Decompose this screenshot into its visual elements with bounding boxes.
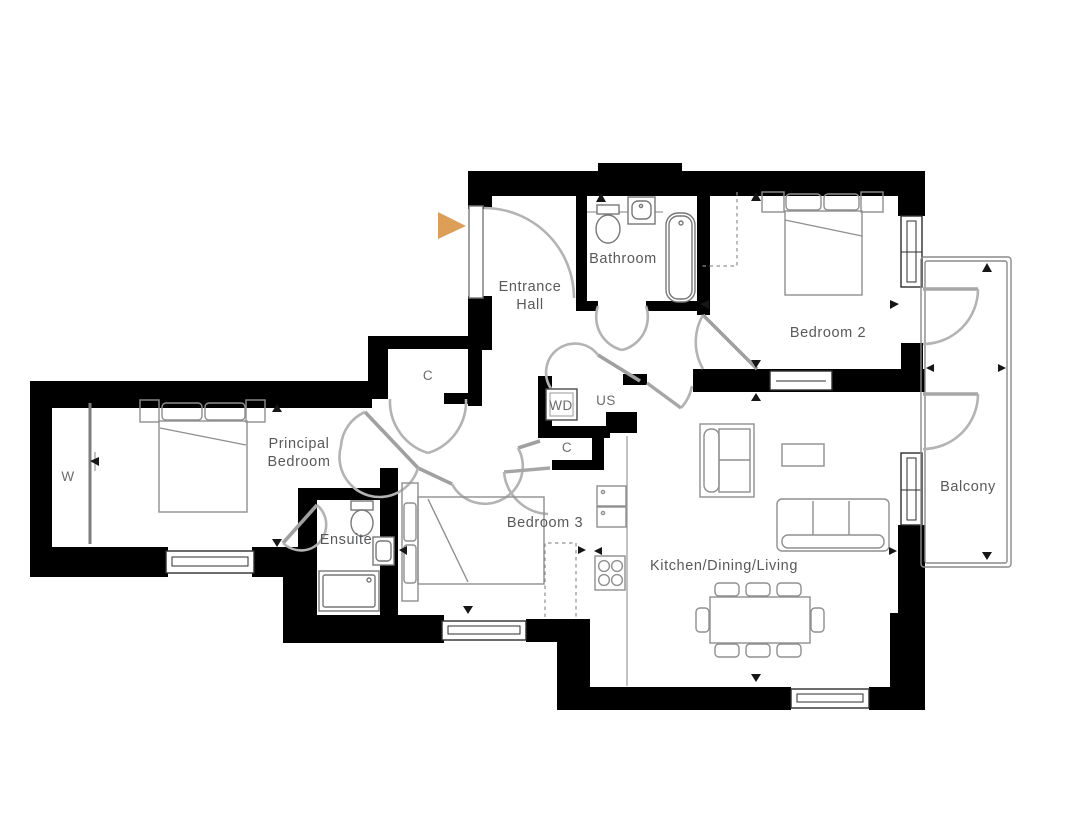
cupboard-door bbox=[504, 468, 550, 514]
bathtub bbox=[666, 213, 695, 302]
label-hall-closet: C bbox=[423, 368, 433, 383]
utility-store-door bbox=[558, 344, 598, 355]
principal-bed bbox=[140, 400, 265, 512]
sofa bbox=[777, 499, 889, 551]
balcony-door-upper bbox=[923, 289, 978, 344]
coffee-table bbox=[782, 444, 824, 466]
toilet bbox=[596, 205, 620, 243]
label-principal-bedroom-2: Bedroom bbox=[267, 454, 330, 470]
shower-tray bbox=[319, 571, 379, 611]
hall-closet-door bbox=[428, 399, 466, 453]
toilet bbox=[351, 501, 373, 536]
label-utility-store: US bbox=[596, 393, 616, 408]
label-entrance-hall-2: Hall bbox=[516, 297, 543, 313]
label-bedroom-2: Bedroom 2 bbox=[790, 325, 866, 341]
balcony-door-lower bbox=[923, 394, 978, 449]
bedroom2-balcony-window bbox=[901, 216, 922, 287]
label-principal-bedroom-1: Principal bbox=[268, 436, 329, 452]
bathroom-door bbox=[596, 306, 622, 350]
label-wardrobe: W bbox=[61, 469, 74, 484]
principal-bedroom-door bbox=[341, 412, 365, 446]
furniture bbox=[90, 192, 889, 686]
bedroom3-window bbox=[442, 621, 526, 640]
hob bbox=[595, 556, 625, 590]
label-balcony: Balcony bbox=[940, 479, 996, 495]
floor-plan: Entrance Hall Bathroom Bedroom 2 Princip… bbox=[0, 0, 1078, 828]
label-cupboard: C bbox=[562, 440, 572, 455]
kitchen-window bbox=[791, 689, 869, 708]
wardrobe-divider bbox=[90, 403, 95, 544]
label-bathroom: Bathroom bbox=[589, 251, 657, 267]
balcony-railing bbox=[921, 257, 1011, 567]
kitchen-units bbox=[595, 436, 627, 686]
armchair bbox=[700, 424, 754, 497]
utility-store-door bbox=[546, 349, 558, 390]
label-entrance-hall-1: Entrance bbox=[499, 279, 562, 295]
label-washer-dryer: WD bbox=[549, 398, 573, 413]
kitchen-door bbox=[647, 383, 692, 408]
bathroom-door bbox=[622, 306, 648, 350]
bedroom2-door bbox=[696, 315, 703, 369]
living-balcony-window bbox=[901, 453, 922, 525]
basin bbox=[628, 197, 655, 224]
floor-plan-page: Entrance Hall Bathroom Bedroom 2 Princip… bbox=[0, 0, 1078, 828]
bedroom3-door bbox=[452, 484, 503, 504]
bedroom3-wardrobe-outline bbox=[545, 543, 576, 617]
label-ensuite: Ensuite bbox=[320, 532, 373, 548]
dining-table bbox=[696, 583, 824, 657]
basin bbox=[373, 537, 394, 565]
internal-wall-window bbox=[770, 371, 832, 390]
bedroom2-bed bbox=[762, 192, 883, 295]
principal-bedroom-window bbox=[166, 551, 254, 573]
label-kitchen-dining-living: Kitchen/Dining/Living bbox=[650, 558, 798, 574]
entrance-arrow-icon bbox=[438, 212, 466, 239]
bathroom-fixtures bbox=[587, 197, 695, 302]
label-bedroom-3: Bedroom 3 bbox=[507, 515, 583, 531]
